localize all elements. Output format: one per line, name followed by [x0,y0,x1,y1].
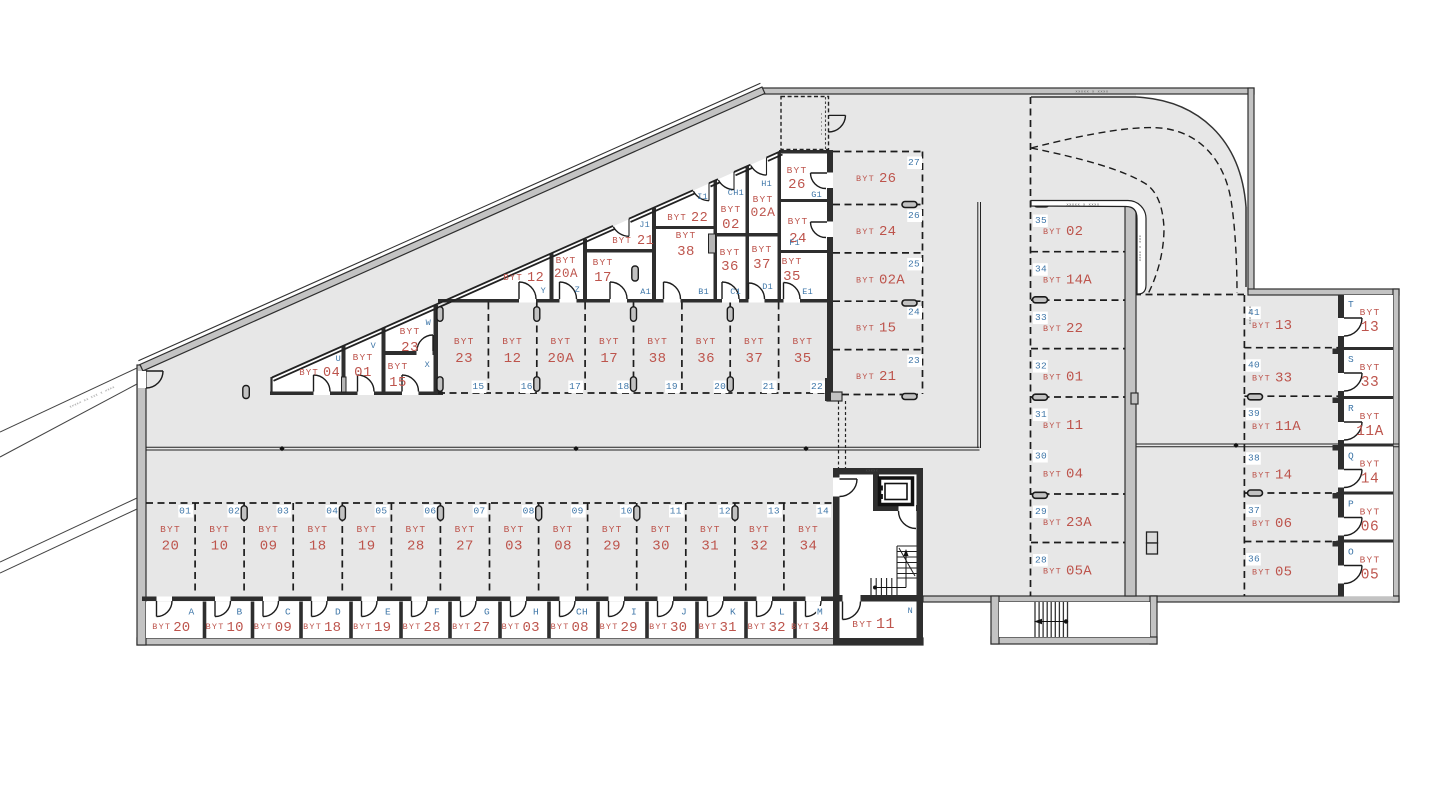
svg-text:18: 18 [617,381,629,392]
svg-text:BYT: BYT [1043,518,1062,528]
svg-text:D1: D1 [762,282,773,292]
svg-text:25: 25 [908,258,920,269]
svg-text:BYT: BYT [551,622,570,632]
svg-text:BYT: BYT [556,255,577,266]
svg-text:13: 13 [768,506,780,517]
svg-text:40: 40 [1248,360,1260,371]
svg-text:06: 06 [424,506,436,517]
svg-text:22: 22 [691,211,708,226]
svg-text:26: 26 [908,210,920,221]
svg-text:BYT: BYT [503,273,523,283]
svg-text:C1: C1 [730,287,741,297]
svg-text:09: 09 [275,620,292,636]
svg-text:BYT: BYT [647,336,668,347]
svg-text:G1: G1 [811,190,822,200]
svg-text:07: 07 [473,506,485,517]
svg-text:21: 21 [763,381,775,392]
svg-text:BYT: BYT [1252,321,1271,331]
svg-text:15: 15 [879,321,896,337]
svg-text:37: 37 [1248,505,1260,516]
svg-text:xxxxx x xxxx: xxxxx x xxxx [1066,203,1100,207]
svg-text:BYT: BYT [696,336,717,347]
svg-text:34: 34 [800,539,818,555]
svg-text:BYT: BYT [1252,519,1271,529]
svg-text:Q: Q [1348,451,1354,462]
svg-text:01: 01 [354,365,372,381]
svg-text:BYT: BYT [856,275,875,285]
svg-text:20A: 20A [548,351,575,367]
svg-text:BYT: BYT [749,524,770,535]
svg-text:A1: A1 [640,287,651,297]
svg-text:11: 11 [670,506,682,517]
svg-text:20: 20 [173,620,190,636]
svg-text:31: 31 [1035,409,1047,420]
svg-text:CH: CH [576,607,588,618]
svg-text:BYT: BYT [602,524,623,535]
svg-text:16: 16 [521,381,533,392]
svg-text:24: 24 [879,224,896,240]
svg-text:G: G [484,607,490,618]
svg-text:B1: B1 [698,287,709,297]
svg-text:BYT: BYT [1043,470,1062,480]
svg-text:02: 02 [1066,224,1083,240]
svg-text:xxxx x xxx: xxxx x xxx [1139,235,1143,262]
svg-text:17: 17 [594,270,612,286]
svg-text:K: K [730,607,736,618]
svg-text:BYT: BYT [676,230,697,241]
svg-text:BYT: BYT [1252,471,1271,481]
svg-text:N: N [908,606,913,616]
svg-text:BYT: BYT [699,622,718,632]
svg-text:F: F [434,607,440,618]
svg-text:BYT: BYT [753,194,774,205]
svg-text:03: 03 [523,620,540,636]
svg-text:23A: 23A [1066,515,1092,531]
svg-text:30: 30 [670,620,687,636]
svg-text:A: A [188,607,194,618]
svg-text:I: I [631,607,637,618]
svg-text:I1: I1 [697,192,708,202]
svg-text:W: W [426,318,432,328]
svg-text:34: 34 [812,620,829,636]
svg-text:xxxxx x xxxx: xxxxx x xxxx [1075,91,1109,95]
svg-text:02: 02 [228,506,240,517]
svg-text:xxxxx: xxxxx [866,470,879,474]
svg-text:09: 09 [260,539,278,555]
svg-text:28: 28 [424,620,441,636]
svg-text:X: X [425,360,430,370]
svg-text:L: L [779,607,785,618]
svg-text:26: 26 [788,177,806,193]
svg-text:29: 29 [603,539,621,555]
svg-text:BYT: BYT [1360,507,1381,518]
svg-text:08: 08 [572,620,589,636]
svg-text:BYT: BYT [356,524,377,535]
svg-text:12: 12 [527,271,544,286]
svg-text:04: 04 [326,506,338,517]
svg-text:32: 32 [769,620,786,636]
svg-text:BYT: BYT [403,622,422,632]
svg-text:14: 14 [1275,468,1292,484]
svg-text:20: 20 [714,381,726,392]
svg-text:21: 21 [637,234,654,249]
svg-text:BYT: BYT [1360,555,1381,566]
svg-text:32: 32 [1035,361,1047,372]
svg-text:BYT: BYT [454,336,475,347]
svg-text:BYT: BYT [752,244,773,255]
svg-text:37: 37 [745,351,763,367]
svg-text:BYT: BYT [353,622,372,632]
svg-text:J1: J1 [639,220,650,230]
svg-text:26: 26 [879,171,896,187]
svg-text:BYT: BYT [455,524,476,535]
svg-text:BYT: BYT [1043,421,1062,431]
svg-text:14: 14 [1361,472,1379,488]
svg-text:21: 21 [879,369,896,385]
svg-text:BYT: BYT [1043,227,1062,237]
svg-text:P: P [1348,499,1354,510]
svg-text:18: 18 [324,620,341,636]
svg-text:05: 05 [1361,568,1379,584]
svg-text:06: 06 [1361,520,1379,536]
svg-text:BYT: BYT [553,524,574,535]
svg-text:29: 29 [1035,506,1047,517]
svg-text:Z: Z [575,285,580,295]
svg-text:BYT: BYT [1252,568,1271,578]
svg-text:BYT: BYT [852,619,873,630]
svg-text:06: 06 [1275,516,1292,532]
svg-text:05: 05 [1275,565,1292,581]
svg-text:BYT: BYT [612,236,632,246]
svg-text:23: 23 [455,351,473,367]
svg-text:D: D [335,607,341,618]
svg-text:T: T [1348,299,1354,310]
svg-text:19: 19 [358,539,376,555]
svg-text:BYT: BYT [254,622,273,632]
svg-text:BYT: BYT [1043,567,1062,577]
svg-text:BYT: BYT [353,352,374,363]
svg-text:BYT: BYT [406,524,427,535]
svg-text:10: 10 [621,506,633,517]
svg-text:BYT: BYT [1252,422,1271,432]
svg-text:33: 33 [1361,375,1379,391]
svg-text:CH1: CH1 [728,188,744,198]
svg-text:Y: Y [541,286,546,296]
svg-text:BYT: BYT [788,216,809,227]
svg-text:03: 03 [277,506,289,517]
svg-text:BYT: BYT [388,361,409,372]
svg-text:27: 27 [473,620,490,636]
svg-text:11A: 11A [1275,419,1301,435]
svg-text:H1: H1 [761,179,772,189]
svg-text:13: 13 [1361,320,1379,336]
svg-text:BYT: BYT [1043,373,1062,383]
svg-text:BYT: BYT [744,336,765,347]
svg-text:08: 08 [554,539,572,555]
svg-text:BYT: BYT [502,622,521,632]
svg-text:36: 36 [697,351,715,367]
svg-text:29: 29 [621,620,638,636]
svg-text:17: 17 [600,351,618,367]
svg-text:27: 27 [456,539,474,555]
svg-text:BYT: BYT [1252,374,1271,384]
svg-text:10: 10 [227,620,244,636]
svg-text:B: B [236,607,242,618]
svg-text:BYT: BYT [748,622,767,632]
svg-text:V: V [371,341,377,351]
svg-text:36: 36 [1248,554,1260,565]
svg-text:BYT: BYT [303,622,322,632]
svg-text:BYT: BYT [1360,362,1381,373]
svg-text:BYT: BYT [452,622,471,632]
svg-text:BYT: BYT [856,174,875,184]
svg-text:37: 37 [753,257,771,273]
svg-text:BYT: BYT [700,524,721,535]
svg-text:M: M [817,607,823,618]
svg-text:38: 38 [1248,453,1260,464]
svg-text:02A: 02A [879,272,905,288]
svg-text:23: 23 [401,340,419,356]
svg-text:BYT: BYT [1360,411,1381,422]
svg-text:BYT: BYT [400,326,421,337]
svg-text:38: 38 [649,351,667,367]
svg-text:BYT: BYT [787,165,808,176]
svg-text:04: 04 [323,366,340,381]
svg-text:11: 11 [876,616,895,633]
svg-text:BYT: BYT [600,622,619,632]
svg-text:28: 28 [1035,555,1047,566]
svg-text:11A: 11A [1356,424,1384,440]
svg-text:34: 34 [1035,264,1047,275]
svg-text:xxx xxx: xxx xxx [1249,306,1253,325]
svg-text:20A: 20A [554,267,578,281]
svg-text:BYT: BYT [721,204,742,215]
svg-text:32: 32 [750,539,768,555]
svg-text:BYT: BYT [160,524,181,535]
svg-text:13: 13 [1275,318,1292,334]
svg-text:BYT: BYT [206,622,225,632]
svg-text:11: 11 [1066,418,1083,434]
svg-text:35: 35 [783,269,801,285]
svg-text:BYT: BYT [502,336,523,347]
svg-text:H: H [533,607,539,618]
svg-text:30: 30 [1035,451,1047,462]
svg-text:05A: 05A [1066,564,1092,580]
svg-text:38: 38 [677,244,695,260]
svg-text:BYT: BYT [209,524,230,535]
svg-text:BYT: BYT [307,524,328,535]
svg-text:35: 35 [794,351,812,367]
svg-text:01: 01 [1066,370,1083,386]
svg-text:03: 03 [505,539,523,555]
svg-text:14A: 14A [1066,273,1092,289]
svg-text:C: C [285,607,291,618]
svg-text:30: 30 [652,539,670,555]
svg-text:02: 02 [722,217,740,233]
svg-text:24: 24 [908,307,920,318]
svg-text:BYT: BYT [856,227,875,237]
svg-text:31: 31 [720,620,737,636]
svg-text:BYT: BYT [667,213,687,223]
svg-text:BYT: BYT [791,622,810,632]
svg-text:BYT: BYT [856,372,875,382]
svg-text:08: 08 [523,506,535,517]
svg-text:10: 10 [211,539,229,555]
svg-text:23: 23 [908,355,920,366]
svg-text:E: E [385,607,391,618]
svg-text:09: 09 [572,506,584,517]
svg-text:33: 33 [1275,371,1292,387]
svg-text:BYT: BYT [1360,307,1381,318]
svg-text:15: 15 [472,381,484,392]
svg-text:27: 27 [908,157,920,168]
svg-text:BYT: BYT [593,257,614,268]
svg-text:12: 12 [504,351,522,367]
svg-text:BYT: BYT [152,622,171,632]
svg-text:33: 33 [1035,312,1047,323]
svg-text:20: 20 [162,539,180,555]
svg-text:BYT: BYT [1360,459,1381,470]
svg-text:22: 22 [1066,321,1083,337]
svg-text:04: 04 [1066,467,1083,483]
svg-text:BYT: BYT [299,368,319,378]
svg-text:02A: 02A [751,205,776,220]
svg-text:17: 17 [569,381,581,392]
svg-text:J: J [681,607,687,618]
svg-text:U: U [336,354,341,364]
svg-text:BYT: BYT [798,524,819,535]
svg-text:19: 19 [374,620,391,636]
svg-text:BYT: BYT [651,524,672,535]
svg-text:18: 18 [309,539,327,555]
svg-text:BYT: BYT [1043,276,1062,286]
svg-text:BYT: BYT [258,524,279,535]
svg-text:BYT: BYT [504,524,525,535]
svg-text:S: S [1348,354,1354,365]
svg-text:R: R [1348,403,1354,414]
svg-text:BYT: BYT [599,336,620,347]
svg-text:O: O [1348,547,1354,558]
svg-text:36: 36 [721,259,739,275]
svg-text:14: 14 [817,506,829,517]
svg-text:BYT: BYT [551,336,572,347]
svg-text:28: 28 [407,539,425,555]
svg-text:31: 31 [701,539,719,555]
svg-text:05: 05 [375,506,387,517]
svg-text:BYT: BYT [782,256,803,267]
svg-text:BYT: BYT [856,324,875,334]
svg-text:22: 22 [811,381,823,392]
svg-text:39: 39 [1248,408,1260,419]
svg-text:BYT: BYT [649,622,668,632]
svg-text:BYT: BYT [792,336,813,347]
svg-text:E1: E1 [802,287,813,297]
svg-text:35: 35 [1035,215,1047,226]
svg-text:01: 01 [179,506,191,517]
svg-text:12: 12 [719,506,731,517]
svg-text:F1: F1 [789,238,800,248]
svg-text:BYT: BYT [1043,324,1062,334]
svg-text:19: 19 [666,381,678,392]
svg-text:BYT: BYT [720,247,741,258]
svg-text:15: 15 [389,375,407,391]
